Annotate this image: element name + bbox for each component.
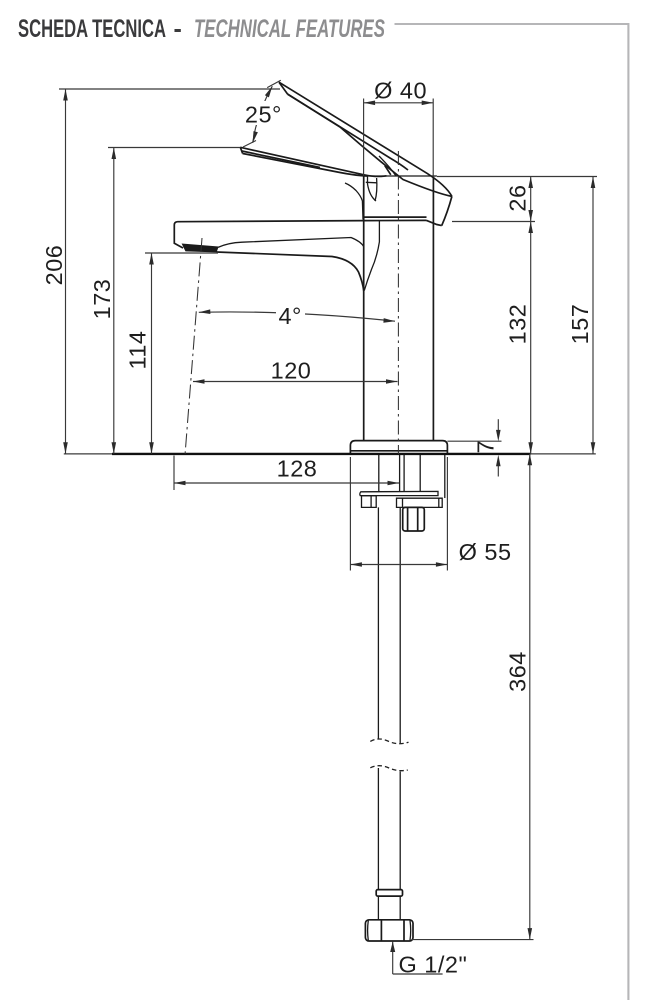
- svg-text:Ø 40: Ø 40: [374, 77, 427, 103]
- svg-text:SCHEDA TECNICA: SCHEDA TECNICA: [18, 15, 166, 43]
- svg-text:206: 206: [41, 245, 67, 286]
- svg-text:Ø 55: Ø 55: [459, 539, 512, 565]
- svg-text:-: -: [174, 15, 182, 43]
- svg-text:132: 132: [505, 304, 531, 345]
- svg-text:120: 120: [271, 358, 312, 384]
- svg-text:26: 26: [505, 184, 531, 211]
- svg-text:G 1/2": G 1/2": [399, 951, 468, 977]
- svg-text:128: 128: [277, 456, 318, 482]
- svg-text:25°: 25°: [245, 102, 282, 128]
- svg-text:TECHNICAL FEATURES: TECHNICAL FEATURES: [194, 15, 385, 43]
- svg-text:4°: 4°: [278, 303, 301, 329]
- svg-text:114: 114: [125, 331, 151, 370]
- svg-text:364: 364: [505, 651, 531, 692]
- svg-text:173: 173: [89, 279, 115, 320]
- svg-text:157: 157: [567, 304, 593, 345]
- svg-text:7: 7: [473, 440, 499, 454]
